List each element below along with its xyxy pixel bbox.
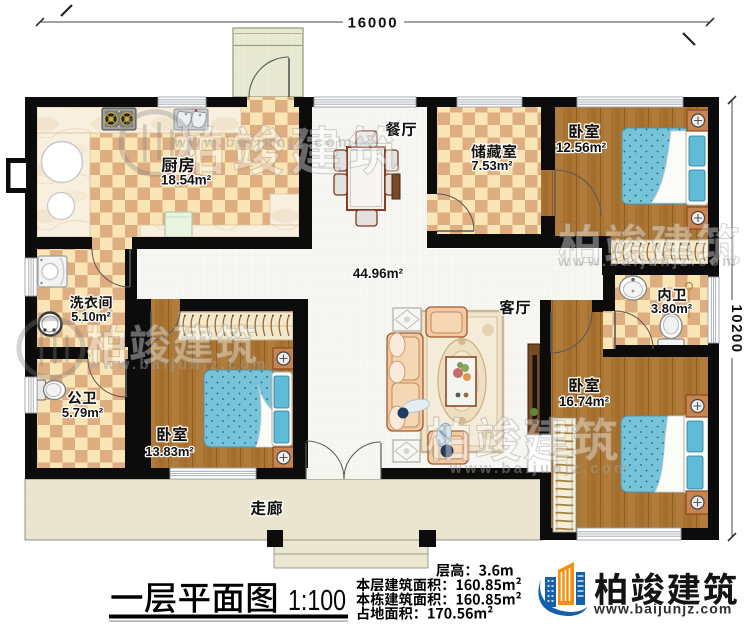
svg-text:44.96m²: 44.96m² [353,266,404,281]
svg-text:16000: 16000 [348,15,399,32]
svg-text:5.79m²: 5.79m² [62,405,104,420]
svg-text:1:100: 1:100 [288,585,346,617]
svg-text:13.83m²: 13.83m² [145,444,194,459]
svg-text:3.80m²: 3.80m² [651,301,693,316]
svg-text:www.baijunjz.com: www.baijunjz.com [449,460,631,477]
svg-text:7.53m²: 7.53m² [471,158,513,173]
svg-text:12.56m²: 12.56m² [556,140,607,155]
svg-text:16.74m²: 16.74m² [559,394,610,409]
svg-text:18.54m²: 18.54m² [161,173,212,188]
svg-text:www.baijunjz.com: www.baijunjz.com [557,253,739,270]
svg-text:www.baijunjz.com: www.baijunjz.com [173,134,355,151]
svg-text:www.baijunjz.com: www.baijunjz.com [593,601,732,617]
svg-text:10200: 10200 [728,304,745,353]
svg-text:5.10m²: 5.10m² [71,310,111,324]
svg-text:www.baijunjz.com: www.baijunjz.com [87,356,269,373]
